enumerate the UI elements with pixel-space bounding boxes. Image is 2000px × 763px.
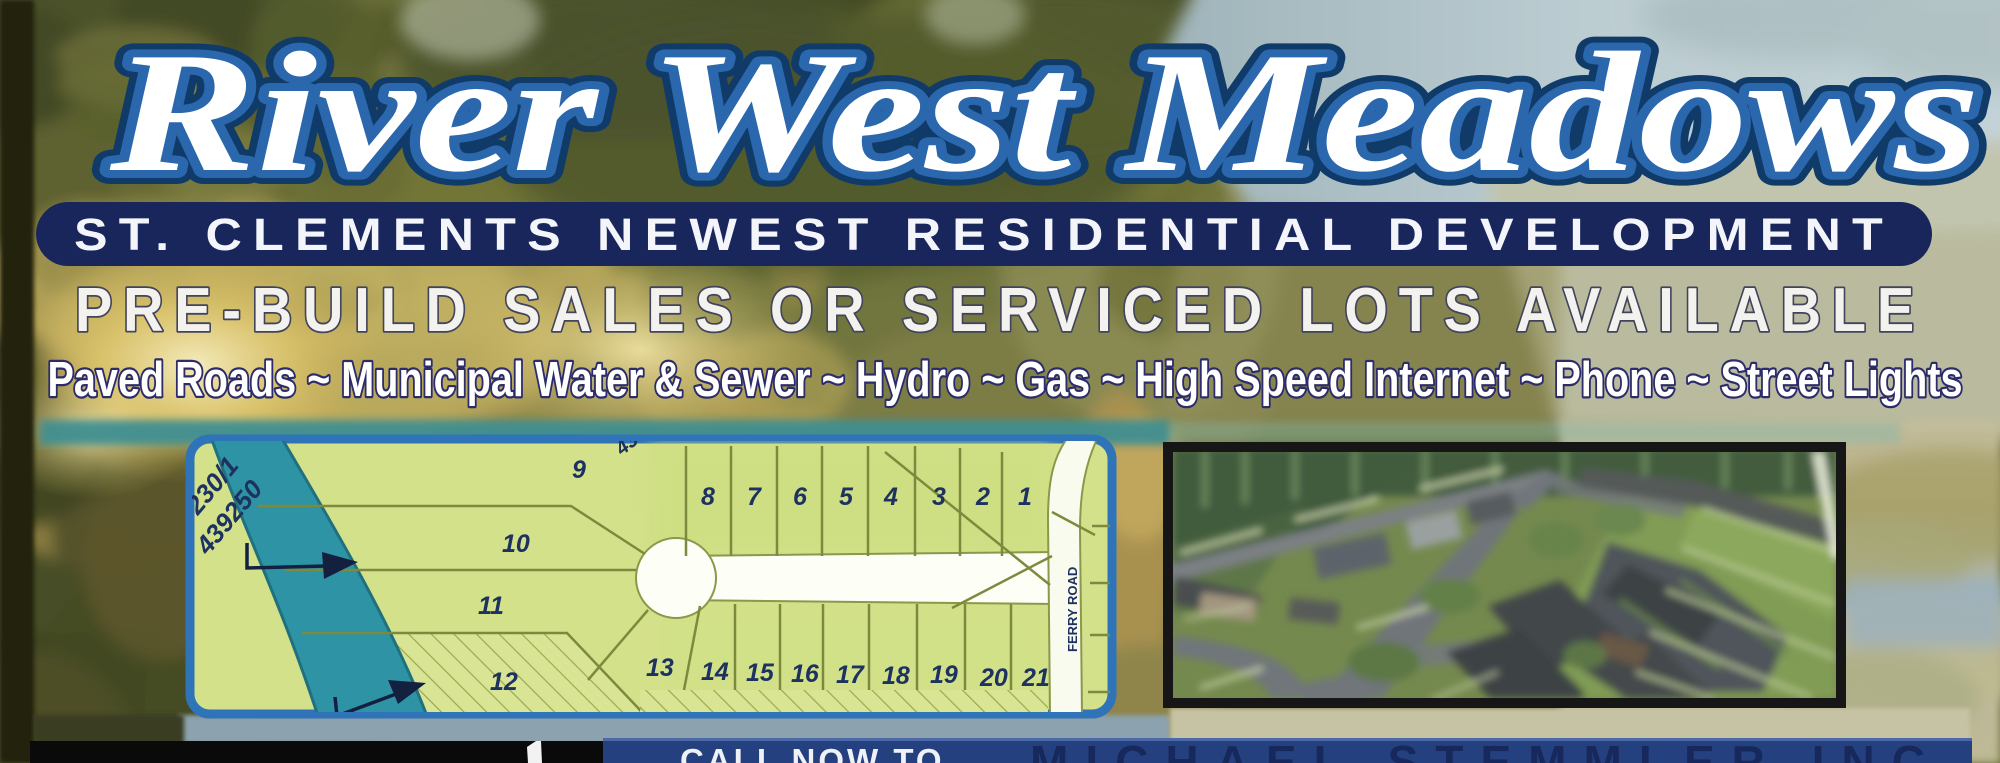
svg-text:FERRY ROAD: FERRY ROAD [1065,567,1080,652]
svg-text:18: 18 [882,662,910,690]
svg-text:6: 6 [793,483,808,511]
svg-text:12: 12 [490,668,518,696]
svg-text:15: 15 [746,659,775,687]
svg-text:9: 9 [572,456,586,484]
svg-text:PRE-BUILD SALES OR SERVICED LO: PRE-BUILD SALES OR SERVICED LOTS AVAILAB… [75,276,1925,345]
svg-text:20: 20 [979,664,1008,692]
svg-text:11: 11 [478,592,504,620]
svg-text:ST. CLEMENTS NEWEST RESIDENTIA: ST. CLEMENTS NEWEST RESIDENTIAL DEVELOPM… [74,209,1894,260]
svg-text:8: 8 [701,483,715,511]
svg-text:7: 7 [747,483,762,511]
svg-text:13: 13 [646,654,674,682]
svg-text:MICHAEL STEMMLER INC: MICHAEL STEMMLER INC [1030,736,1930,763]
svg-text:5: 5 [839,483,854,511]
svg-text:21: 21 [1021,664,1050,692]
svg-text:2: 2 [975,483,990,511]
svg-text:River West Meadows: River West Meadows [109,18,1980,208]
svg-text:19: 19 [930,661,958,689]
svg-text:14: 14 [701,658,729,686]
svg-text:CALL NOW TO: CALL NOW TO [680,742,945,763]
svg-text:1: 1 [1018,483,1032,511]
svg-text:10: 10 [502,530,530,558]
svg-text:Paved Roads ~ Municipal Water: Paved Roads ~ Municipal Water & Sewer ~ … [48,353,1963,407]
svg-text:4: 4 [883,483,898,511]
svg-text:17: 17 [836,661,865,689]
svg-text:3: 3 [932,483,946,511]
svg-text:16: 16 [791,660,820,688]
